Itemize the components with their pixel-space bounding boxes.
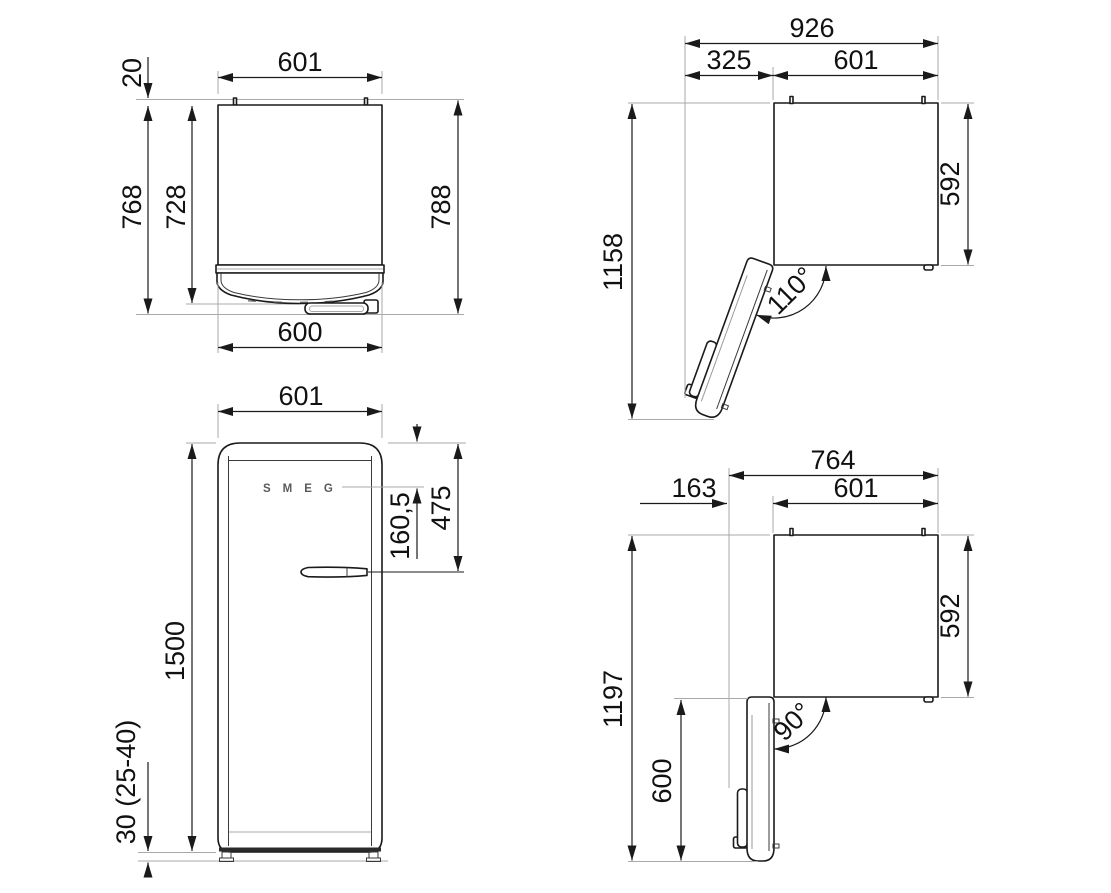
dim-handle-offset: 475 (426, 444, 458, 571)
cabinet-front-outline (218, 443, 382, 852)
dim-label-depth-total: 788 (426, 184, 456, 229)
dim-label-handle-offset: 475 (426, 485, 456, 530)
top-view-door-90: 90° 764 163 601 1197 600 (598, 445, 974, 862)
dim-door-swing: 325 (685, 45, 773, 100)
dim-logo-offset: 160,5 (385, 424, 417, 560)
top-view-closed: 601 20 768 728 788 600 (117, 47, 464, 353)
dim-width: 601 (773, 473, 938, 533)
dim-label-height: 1500 (160, 621, 190, 681)
dim-wall-gap: 20 (117, 57, 148, 98)
rear-spacer-pin (234, 98, 237, 105)
dim-depth-total: 788 (426, 101, 458, 314)
dim-label-width: 601 (833, 45, 878, 75)
dim-total-depth: 1158 (598, 103, 770, 420)
hinge-nub (924, 265, 933, 270)
rear-spacer-pin (790, 529, 793, 536)
dim-label-depth-body: 728 (161, 184, 191, 229)
dim-width-top: 601 (218, 47, 382, 94)
dimension-drawing-page: 601 20 768 728 788 600 (0, 0, 1111, 893)
dim-width: 601 (218, 381, 382, 438)
dim-label-body-depth: 592 (935, 161, 965, 206)
dim-width: 601 (773, 45, 938, 76)
dim-label-door-protrusion: 163 (671, 473, 716, 503)
door-top-profile (217, 273, 383, 304)
rear-spacer-pin (922, 97, 925, 104)
dim-plinth-height: 30 (25-40) (111, 720, 148, 874)
dim-label-depth-with-door: 768 (117, 184, 147, 229)
door-slab (693, 257, 774, 420)
dim-door-depth: 600 (647, 699, 748, 861)
dim-label-door-depth: 600 (647, 758, 677, 803)
dim-label-door-swing: 325 (706, 45, 751, 75)
rear-spacer-pin (365, 98, 368, 105)
dim-label-total-width: 764 (810, 445, 855, 475)
foot-right (367, 852, 381, 862)
handle-grip-top (305, 303, 368, 314)
cabinet-body-top (774, 535, 938, 697)
dim-height: 1500 (160, 444, 192, 851)
front-view: SMEG 601 1500 160,5 475 30 (25-40) (111, 381, 466, 874)
dim-depth-with-door: 768 (117, 106, 148, 314)
dim-body-depth: 592 (935, 103, 974, 266)
open-door-110 (680, 252, 779, 422)
dim-label-width-door: 600 (277, 317, 322, 347)
door-slab (747, 697, 774, 861)
hinge-nub (924, 697, 933, 702)
dim-label-wall-gap: 20 (117, 58, 147, 88)
top-view-door-110: 110° 926 325 601 1158 592 (598, 13, 974, 422)
brand-logo: SMEG (263, 483, 345, 495)
door-handle-front (301, 567, 367, 577)
foot-left (220, 852, 234, 862)
dim-label-body-depth: 592 (935, 593, 965, 638)
dim-label-total-depth: 1197 (598, 670, 628, 728)
dim-label-total-width: 926 (789, 13, 834, 43)
dim-label-width: 601 (833, 473, 878, 503)
refrigerator-dimension-drawing: 601 20 768 728 788 600 (0, 0, 1111, 893)
dim-label-width: 601 (278, 381, 323, 411)
dim-label-total-depth: 1158 (598, 233, 628, 291)
cabinet-body-top (774, 103, 938, 265)
dim-depth-body: 728 (161, 106, 192, 303)
cabinet-body-top (218, 105, 382, 265)
dim-label-width-top: 601 (277, 47, 322, 77)
dim-label-logo-offset: 160,5 (385, 492, 415, 560)
dim-label-plinth-height: 30 (25-40) (111, 720, 141, 845)
dim-door-protrusion: 163 (640, 473, 727, 504)
dim-label-angle: 90° (768, 697, 818, 747)
handle-grip (738, 789, 748, 847)
rear-spacer-pin (922, 529, 925, 536)
dim-body-depth: 592 (935, 535, 974, 698)
rear-spacer-pin (790, 97, 793, 104)
